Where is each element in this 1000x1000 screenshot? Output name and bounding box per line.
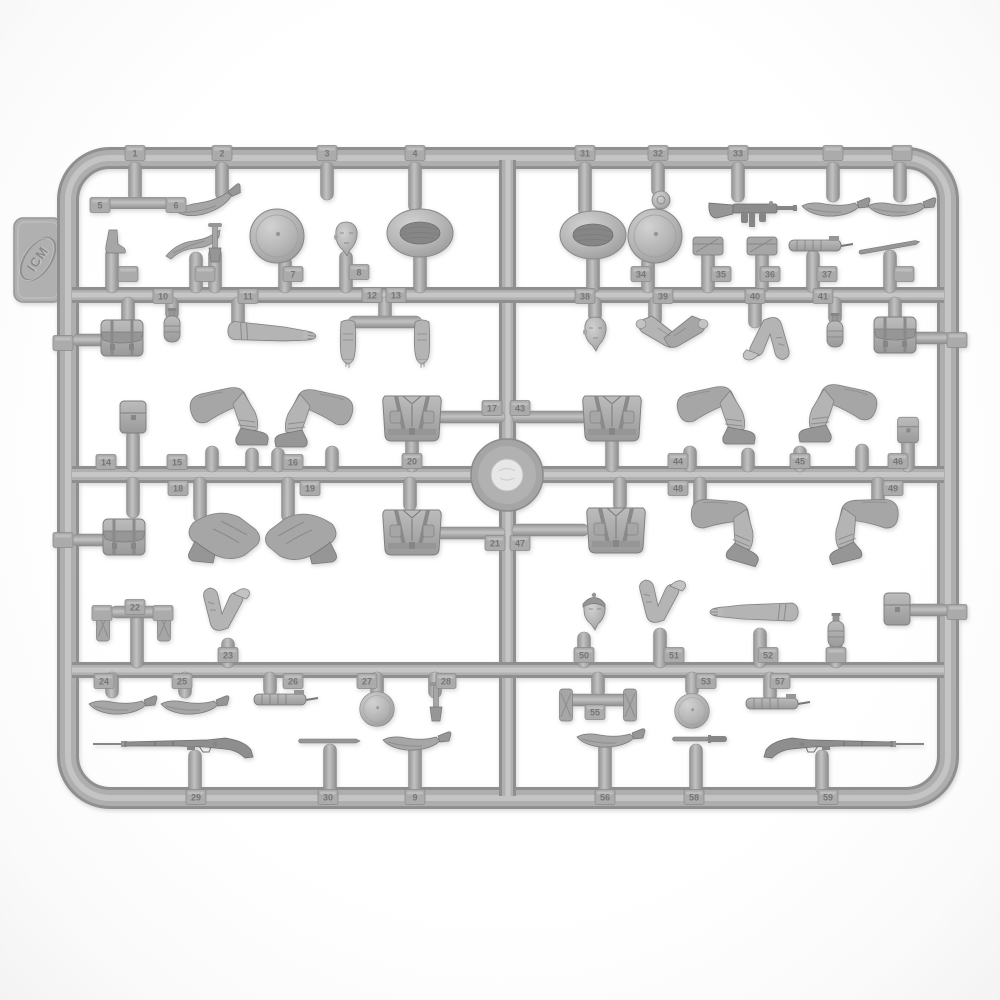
part-number-tab-47: 47 <box>510 536 530 551</box>
part-armspair <box>636 316 708 347</box>
part-canteen <box>828 613 844 647</box>
part-number: 56 <box>600 793 610 803</box>
part-number-tab-49: 49 <box>883 481 903 496</box>
part-number: 8 <box>356 268 361 278</box>
sprue-stem-vertical <box>579 162 592 216</box>
part-head <box>334 222 357 256</box>
part-helmet <box>360 692 395 727</box>
part-number: 57 <box>775 677 785 687</box>
part-stick <box>299 739 361 743</box>
blank-tab <box>153 606 173 621</box>
blank-tab <box>118 267 138 282</box>
part-number-tab-53: 53 <box>696 674 716 689</box>
part-number-tab-5: 5 <box>90 198 110 213</box>
part-number-tab-30: 30 <box>318 790 338 805</box>
part-torso <box>583 396 642 441</box>
sprue-stem-vertical <box>127 430 140 472</box>
part-number-tab-58: 58 <box>684 790 704 805</box>
part-rifle <box>93 738 253 758</box>
part-number-tab-59: 59 <box>818 790 838 805</box>
part-number: 20 <box>407 457 417 467</box>
part-number: 45 <box>795 457 805 467</box>
part-number: 38 <box>580 292 590 302</box>
sprue-stem-vertical <box>587 254 600 293</box>
part-kukri <box>89 696 157 714</box>
part-number-tab-37: 37 <box>817 267 837 282</box>
sprue-stem-vertical <box>321 162 334 200</box>
part-number-tab-12: 12 <box>362 288 382 303</box>
part-number-tab-24: 24 <box>94 674 114 689</box>
part-rifle <box>764 738 924 758</box>
part-number: 34 <box>636 270 646 280</box>
part-number: 41 <box>818 292 828 302</box>
part-number: 50 <box>579 651 589 661</box>
part-number-tab-33: 33 <box>728 146 748 161</box>
sprue-stem-vertical <box>690 744 703 794</box>
part-number-tab-8: 8 <box>349 265 369 280</box>
part-number: 59 <box>823 793 833 803</box>
part-number-tab-13: 13 <box>386 288 406 303</box>
part-number-tab-55: 55 <box>585 705 605 720</box>
part-number: 39 <box>658 292 668 302</box>
blank-tab <box>947 333 967 348</box>
part-number: 35 <box>716 270 726 280</box>
part-number: 18 <box>173 484 183 494</box>
part-number: 23 <box>223 651 233 661</box>
part-pouchsq <box>884 593 910 625</box>
sprue-stem-vertical <box>206 446 219 472</box>
part-number-tab-34: 34 <box>631 267 651 282</box>
part-number: 33 <box>733 149 743 159</box>
part-number: 51 <box>669 651 679 661</box>
photo-stage: ICM ICM 12345678101112131 <box>0 0 1000 1000</box>
part-number: 27 <box>362 677 372 687</box>
part-legbent <box>799 385 877 442</box>
part-number: 9 <box>412 793 417 803</box>
part-pouchsq <box>120 401 146 433</box>
part-number-tab-1: 1 <box>125 146 145 161</box>
part-number-tab-17: 17 <box>482 401 502 416</box>
part-number-tab-56: 56 <box>595 790 615 805</box>
part-number: 7 <box>290 270 295 280</box>
sprue-stem-vertical <box>264 672 277 696</box>
part-number-tab-38: 38 <box>575 289 595 304</box>
sprue-stem-horizontal <box>512 524 589 536</box>
part-number: 44 <box>673 457 683 467</box>
sprue-stem-vertical <box>326 446 339 472</box>
part-number: 3 <box>324 149 329 159</box>
part-boot <box>106 230 126 253</box>
part-number: 11 <box>243 292 253 302</box>
blank-tab <box>823 146 843 161</box>
part-number: 5 <box>97 201 102 211</box>
part-flat <box>624 689 637 721</box>
sprue-stem-vertical <box>129 162 142 202</box>
blank-tab <box>892 146 912 161</box>
part-number-tab-29: 29 <box>186 790 206 805</box>
part-torso <box>383 510 442 555</box>
blank-tab <box>92 606 112 621</box>
part-helmet <box>250 209 304 263</box>
part-number-tab-41: 41 <box>813 289 833 304</box>
part-smg <box>709 201 797 227</box>
sprue-stem-vertical <box>127 477 140 518</box>
part-number-tab-44: 44 <box>668 454 688 469</box>
sprue-tree: ICM ICM 12345678101112131 <box>12 146 967 805</box>
part-number: 47 <box>515 539 525 549</box>
part-number: 28 <box>441 677 451 687</box>
part-helmet <box>628 209 682 263</box>
part-number-tab-7: 7 <box>283 267 303 282</box>
part-pouchflat <box>747 237 777 255</box>
part-legbent <box>817 491 907 566</box>
part-number: 43 <box>515 404 525 414</box>
part-kukri <box>577 729 645 747</box>
part-number-tab-52: 52 <box>758 648 778 663</box>
part-number: 29 <box>191 793 201 803</box>
part-number: 24 <box>99 677 109 687</box>
part-armdown <box>340 320 355 368</box>
part-pouchsq <box>898 417 919 443</box>
part-number-tab-50: 50 <box>574 648 594 663</box>
sprue-stem-vertical <box>324 744 337 794</box>
part-legbent <box>677 387 755 444</box>
part-number-tab-21: 21 <box>485 536 505 551</box>
part-number: 55 <box>590 708 600 718</box>
part-number-tab-48: 48 <box>668 481 688 496</box>
part-torso <box>383 396 442 441</box>
part-number-tab-10: 10 <box>153 289 173 304</box>
sprue-stem-vertical <box>272 448 285 472</box>
part-mgpart <box>789 236 853 251</box>
part-number-tab-2: 2 <box>212 146 232 161</box>
sprue-stem-vertical <box>106 248 119 293</box>
part-kukri <box>383 732 451 750</box>
part-number-tab-6: 6 <box>166 198 186 213</box>
part-number: 12 <box>367 291 377 301</box>
part-number: 14 <box>101 458 111 468</box>
part-number-tab-46: 46 <box>888 454 908 469</box>
part-number-tab-43: 43 <box>510 401 530 416</box>
part-number-tab-14: 14 <box>96 455 116 470</box>
sprue-stem-vertical <box>856 444 869 472</box>
part-pilotka <box>387 209 453 257</box>
part-number: 25 <box>177 677 187 687</box>
part-number: 40 <box>750 292 760 302</box>
sprue-stem-vertical <box>246 448 259 472</box>
part-number-tab-51: 51 <box>664 648 684 663</box>
part-number-tab-26: 26 <box>283 674 303 689</box>
part-number-tab-32: 32 <box>648 146 668 161</box>
part-head <box>583 317 606 351</box>
sprue-stem-vertical <box>599 740 612 794</box>
part-number-tab-39: 39 <box>653 289 673 304</box>
part-number: 58 <box>689 793 699 803</box>
sprue-stem-vertical <box>409 162 422 212</box>
part-number-tab-40: 40 <box>745 289 765 304</box>
part-legslow <box>265 514 336 564</box>
part-armdown <box>414 320 429 368</box>
part-pilotka <box>560 211 626 259</box>
blank-tab <box>53 533 73 548</box>
part-number: 10 <box>158 292 168 302</box>
part-armbent <box>204 588 250 630</box>
part-kukri <box>161 696 229 714</box>
sprue-stem-vertical <box>131 612 144 668</box>
sprue-stem-vertical <box>404 477 417 511</box>
part-number-tab-11: 11 <box>238 289 258 304</box>
part-number: 49 <box>888 484 898 494</box>
part-pouchflat <box>693 237 723 255</box>
part-number-tab-20: 20 <box>402 454 422 469</box>
part-number: 19 <box>305 484 315 494</box>
part-backpack <box>103 519 145 555</box>
blank-tab <box>195 267 215 282</box>
part-legbent <box>190 388 268 445</box>
part-number: 46 <box>893 457 903 467</box>
part-number: 32 <box>653 149 663 159</box>
part-mgpart <box>254 690 318 705</box>
part-number: 30 <box>323 793 333 803</box>
part-number-tab-22: 22 <box>125 600 145 615</box>
sprue-stem-vertical <box>194 477 207 522</box>
part-number: 36 <box>765 270 775 280</box>
part-bayonet <box>673 735 728 743</box>
sprue-stem-horizontal <box>906 604 950 616</box>
part-number-tab-57: 57 <box>770 674 790 689</box>
part-disc <box>652 191 670 209</box>
part-number-tab-25: 25 <box>172 674 192 689</box>
part-number-tab-18: 18 <box>168 481 188 496</box>
sprue-stem-vertical <box>816 750 829 794</box>
part-number: 31 <box>580 149 590 159</box>
part-number-tab-23: 23 <box>218 648 238 663</box>
part-number-tab-28: 28 <box>436 674 456 689</box>
brand-logo-tab: ICM ICM <box>12 218 62 302</box>
part-number: 52 <box>763 651 773 661</box>
part-headcap <box>583 593 605 630</box>
part-legslow <box>189 513 260 563</box>
part-armstraight <box>710 603 798 621</box>
part-number-tab-16: 16 <box>283 455 303 470</box>
part-number: 15 <box>172 458 182 468</box>
part-backpack <box>874 317 916 353</box>
blank-tab <box>826 648 846 663</box>
part-number: 4 <box>412 149 417 159</box>
blank-tab <box>947 605 967 620</box>
part-number: 22 <box>130 603 140 613</box>
part-number: 53 <box>701 677 711 687</box>
part-number: 1 <box>132 149 137 159</box>
part-number: 21 <box>490 539 500 549</box>
part-hbar <box>105 197 171 209</box>
sprue-stem-vertical <box>732 162 745 202</box>
part-armbent <box>640 580 686 622</box>
part-number-tab-45: 45 <box>790 454 810 469</box>
blank-tab <box>53 336 73 351</box>
part-number: 2 <box>219 149 224 159</box>
part-mgpart <box>746 694 810 709</box>
part-number: 26 <box>288 677 298 687</box>
part-number-tab-19: 19 <box>300 481 320 496</box>
part-number-tab-35: 35 <box>711 267 731 282</box>
part-number-tab-36: 36 <box>760 267 780 282</box>
part-number: 16 <box>288 458 298 468</box>
sprue-stem-vertical <box>742 448 755 472</box>
part-number-tab-27: 27 <box>357 674 377 689</box>
part-helmet <box>675 694 710 729</box>
part-armstraight <box>227 321 316 345</box>
sprue-stem-vertical <box>894 162 907 202</box>
part-number: 6 <box>173 201 178 211</box>
part-number-tab-9: 9 <box>405 790 425 805</box>
part-number: 48 <box>673 484 683 494</box>
part-number-tab-31: 31 <box>575 146 595 161</box>
part-number-tab-4: 4 <box>405 146 425 161</box>
part-number: 37 <box>822 270 832 280</box>
sprue-stem-vertical <box>189 750 202 794</box>
part-legbent <box>275 390 353 447</box>
part-number-tab-15: 15 <box>167 455 187 470</box>
center-gate-boss <box>471 439 543 511</box>
part-backpack <box>101 320 143 356</box>
part-number: 13 <box>391 291 401 301</box>
sprue-photo: ICM ICM 12345678101112131 <box>0 0 1000 1000</box>
blank-tab <box>894 267 914 282</box>
sprue-stem-vertical <box>614 477 627 511</box>
part-hbar <box>352 316 418 328</box>
part-number: 17 <box>487 404 497 414</box>
sprue-stem-vertical <box>827 162 840 202</box>
part-number-tab-3: 3 <box>317 146 337 161</box>
part-torso <box>587 508 646 553</box>
part-flat <box>560 689 573 721</box>
